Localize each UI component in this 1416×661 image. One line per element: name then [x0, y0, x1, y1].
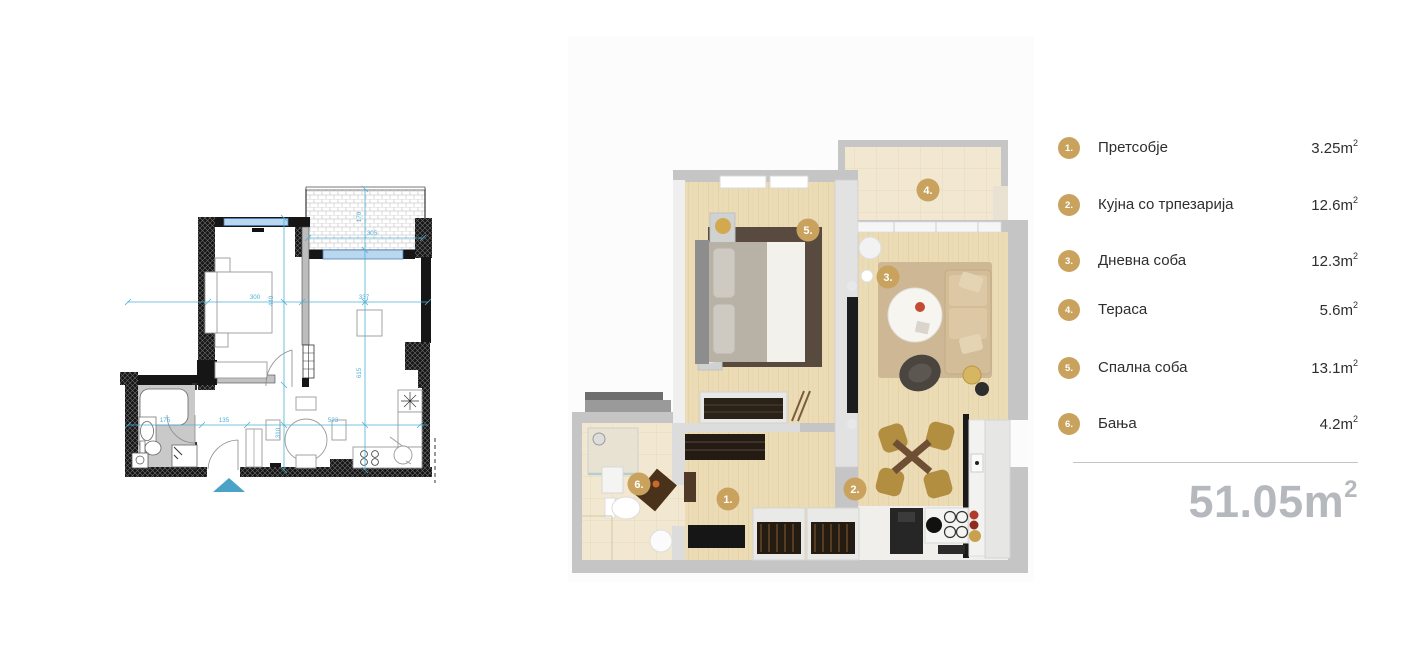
- badge-living: 3.: [877, 266, 900, 289]
- svg-text:300: 300: [250, 294, 261, 301]
- svg-text:310: 310: [275, 427, 282, 438]
- svg-text:175: 175: [160, 417, 171, 424]
- doormat: [688, 525, 745, 548]
- legend-row-terrace: 4. Тераса 5.6m2: [1058, 299, 1358, 323]
- table-2d: [357, 310, 382, 336]
- svg-text:170: 170: [356, 211, 363, 222]
- svg-text:305: 305: [367, 230, 378, 237]
- floor-lamp: [963, 366, 981, 384]
- legend-badge: 3.: [1058, 250, 1080, 272]
- doormat-2d: [270, 463, 281, 467]
- ceiling-light: [859, 237, 881, 259]
- bedroom-window: [224, 219, 288, 226]
- living-windows: [858, 222, 1001, 232]
- bed-headboard: [695, 240, 709, 364]
- kitchen-furniture-2d: [266, 310, 422, 468]
- bathroom-sink: [602, 467, 623, 493]
- room-label: Кујна со трпезарија: [1098, 196, 1234, 213]
- laundry-basket: [650, 530, 672, 552]
- legend-divider: [1073, 462, 1358, 463]
- room-label: Бања: [1098, 415, 1137, 432]
- svg-text:440: 440: [268, 295, 275, 306]
- legend-row-kitchen: 2. Кујна со трпезарија 12.6m2: [1058, 194, 1358, 218]
- room-area: 5.6m2: [1320, 301, 1358, 319]
- entrance-arrow: [213, 478, 245, 492]
- bed-2d: [205, 272, 272, 333]
- svg-text:135: 135: [219, 417, 230, 424]
- svg-text:615: 615: [356, 367, 363, 378]
- fridge: [985, 420, 1010, 558]
- bottle: [970, 511, 979, 520]
- badge-kitchen: 2.: [844, 478, 867, 501]
- nightstand-2d: [215, 258, 230, 272]
- legend-badge: 6.: [1058, 413, 1080, 435]
- svg-text:6.: 6.: [634, 479, 643, 491]
- shower-head: [593, 433, 605, 445]
- bathroom-2d: [132, 385, 197, 468]
- room-area: 13.1m2: [1311, 359, 1358, 377]
- badge-bedroom: 5.: [797, 219, 820, 242]
- badge-bathroom: 6.: [628, 473, 651, 496]
- svg-text:1.: 1.: [723, 494, 732, 506]
- room-label: Дневна соба: [1098, 252, 1186, 269]
- pillow: [713, 248, 735, 298]
- legend-badge: 2.: [1058, 194, 1080, 216]
- svg-text:337: 337: [359, 294, 370, 301]
- svg-text:523: 523: [328, 417, 339, 424]
- svg-text:5.: 5.: [803, 225, 812, 237]
- legend-badge: 5.: [1058, 357, 1080, 379]
- badge-entry: 1.: [717, 488, 740, 511]
- bed-sheet: [767, 242, 805, 362]
- kitchen-3d: [874, 414, 1010, 558]
- floorplan-page: 300 337 440 615 175 135 523 310 305 170: [0, 0, 1416, 661]
- floorplan-3d: 1. 2. 3. 4. 5. 6.: [568, 36, 1034, 582]
- room-label: Тераса: [1098, 301, 1147, 318]
- floorplan-2d: 300 337 440 615 175 135 523 310 305 170: [120, 183, 452, 498]
- ac-unit: [770, 176, 808, 188]
- legend-panel: 1. Претсобје 3.25m2 2. Кујна со трпезари…: [1058, 134, 1358, 554]
- kitchen-sink-2d: [394, 446, 412, 464]
- sink-2d: [141, 422, 154, 441]
- legend-row-entry: 1. Претсобје 3.25m2: [1058, 137, 1358, 161]
- tv-panel: [847, 297, 858, 413]
- room-area: 3.25m2: [1311, 139, 1358, 157]
- terrace-window: [323, 250, 403, 259]
- svg-text:3.: 3.: [883, 272, 892, 284]
- legend-badge: 1.: [1058, 137, 1080, 159]
- entry-console: [685, 434, 765, 460]
- ac-unit: [720, 176, 766, 188]
- bottle: [970, 521, 979, 530]
- coffee-table: [888, 288, 942, 342]
- room-area: 12.3m2: [1311, 252, 1358, 270]
- pillow: [713, 304, 735, 354]
- washing-machine-2d: [132, 453, 148, 468]
- badge-terrace: 4.: [917, 179, 940, 202]
- room-area: 12.6m2: [1311, 196, 1358, 214]
- room-area: 4.2m2: [1320, 415, 1358, 433]
- bowl: [969, 530, 981, 542]
- lamp: [715, 218, 731, 234]
- room-label: Претсобје: [1098, 139, 1168, 156]
- entrance-door-2d: [208, 440, 238, 470]
- svg-text:2.: 2.: [850, 484, 859, 496]
- dresser-2d: [215, 362, 267, 378]
- entry-shelf: [684, 472, 696, 502]
- room-label: Спална соба: [1098, 359, 1187, 376]
- toilet: [612, 497, 640, 519]
- svg-text:4.: 4.: [923, 185, 932, 197]
- legend-row-living: 3. Дневна соба 12.3m2: [1058, 250, 1358, 274]
- total-area: 51.05m2: [1058, 476, 1358, 528]
- legend-row-bathroom: 6. Бања 4.2m2: [1058, 413, 1358, 437]
- legend-row-bedroom: 5. Спална соба 13.1m2: [1058, 357, 1358, 381]
- legend-badge: 4.: [1058, 299, 1080, 321]
